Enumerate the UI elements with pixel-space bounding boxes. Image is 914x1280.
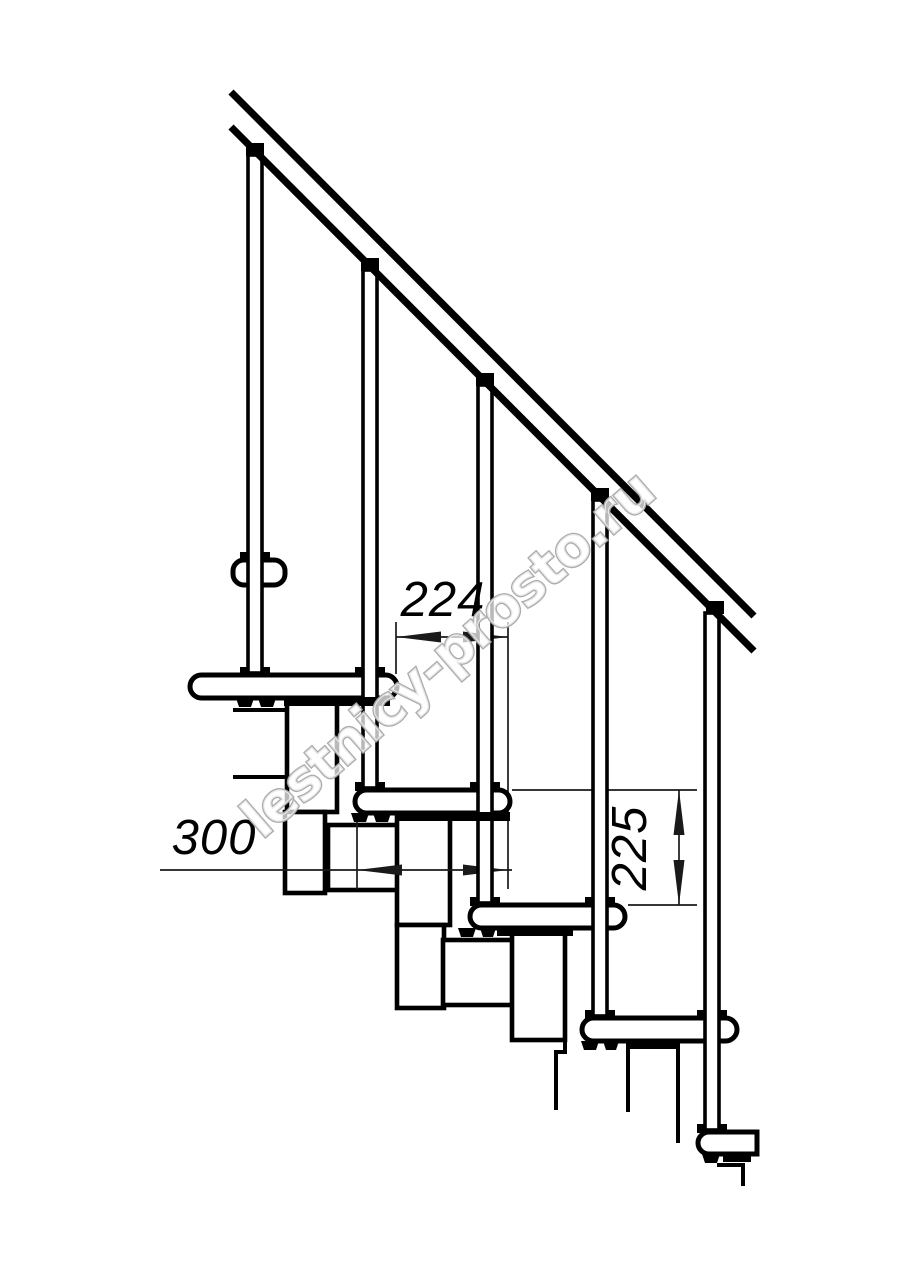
under-pad [581, 1041, 599, 1050]
collar [262, 667, 270, 676]
under-pad [351, 813, 369, 822]
collar [240, 552, 248, 561]
collar [492, 782, 500, 791]
arrow-225-down [674, 860, 685, 905]
module-box-4 [443, 940, 515, 1005]
module-cut-line-a [556, 1040, 565, 1110]
baluster-4 [593, 500, 607, 1016]
under-pad [603, 1041, 619, 1050]
collar [355, 782, 363, 791]
module-column-4 [512, 928, 565, 1040]
module-column-3-upper [397, 813, 450, 925]
collar [719, 1124, 727, 1133]
under-pad [480, 928, 496, 937]
collar [719, 1010, 727, 1019]
module-cut-line-d [717, 1165, 743, 1186]
tread-6 [698, 1132, 757, 1154]
collar [262, 552, 270, 561]
collar [240, 667, 248, 676]
under-pad [458, 928, 476, 937]
collar [607, 1010, 615, 1019]
collar [377, 782, 385, 791]
baluster-1 [248, 155, 262, 673]
collar [470, 897, 478, 906]
collar [585, 1010, 593, 1019]
under-pad [702, 1154, 720, 1163]
collar [607, 897, 615, 906]
module-column-3-lower [397, 925, 444, 1008]
collar [470, 782, 478, 791]
under-bar [397, 812, 510, 821]
module-box-3 [328, 825, 403, 890]
dim-225-label: 225 [603, 806, 657, 892]
collar [585, 897, 593, 906]
under-pad [373, 813, 391, 822]
collar [697, 1124, 705, 1133]
staircase-drawing: 224 300 225 lestnicy-prosto.ru [0, 0, 914, 1280]
under-pad [258, 698, 276, 707]
under-pad [236, 698, 254, 707]
under-bar [723, 1153, 751, 1162]
baluster-5 [705, 613, 719, 1130]
arrow-225-up [674, 790, 685, 835]
under-bar [497, 927, 573, 936]
collar [355, 667, 363, 676]
collar [697, 1010, 705, 1019]
under-bar [626, 1040, 677, 1049]
collar [492, 897, 500, 906]
